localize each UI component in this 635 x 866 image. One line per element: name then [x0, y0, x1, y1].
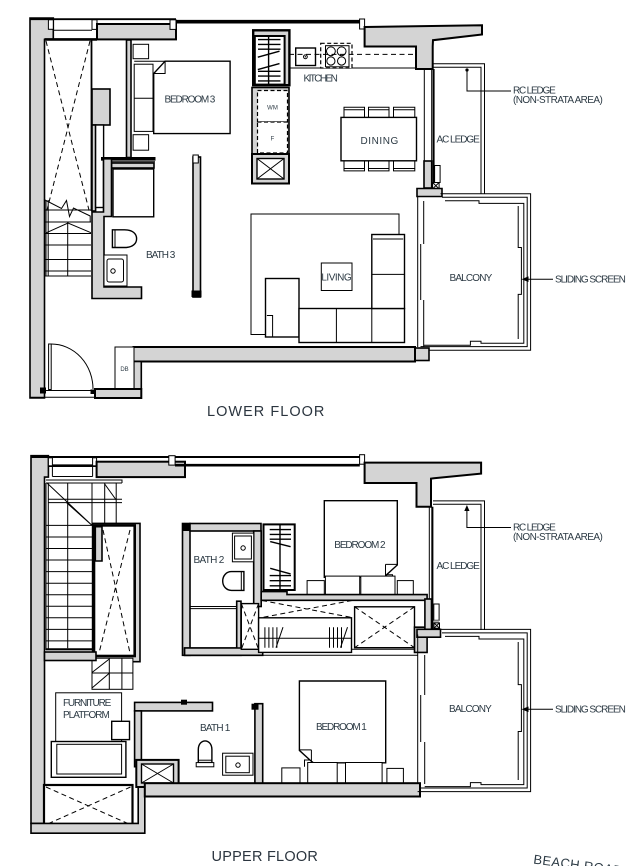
svg-text:BATH 2: BATH 2 [194, 555, 225, 566]
svg-text:BATH 3: BATH 3 [146, 250, 176, 261]
svg-text:LIVING: LIVING [321, 273, 352, 284]
svg-text:SLIDING SCREEN: SLIDING SCREEN [555, 705, 626, 716]
svg-text:UPPER FLOOR: UPPER FLOOR [212, 849, 321, 865]
svg-text:SLIDING SCREEN: SLIDING SCREEN [555, 275, 626, 286]
svg-text:AC LEDGE: AC LEDGE [437, 135, 481, 146]
svg-text:DINING: DINING [361, 136, 399, 147]
svg-text:WM: WM [267, 106, 278, 112]
svg-text:BEDROOM 1: BEDROOM 1 [316, 722, 367, 733]
svg-text:F: F [271, 137, 275, 143]
svg-text:BEDROOM 2: BEDROOM 2 [334, 540, 386, 551]
svg-text:BATH 1: BATH 1 [200, 723, 231, 734]
svg-text:KITCHEN: KITCHEN [304, 74, 339, 85]
svg-text:LOWER FLOOR: LOWER FLOOR [207, 404, 327, 420]
svg-text:AC LEDGE: AC LEDGE [437, 561, 481, 572]
svg-text:(NON-STRATA AREA): (NON-STRATA AREA) [513, 95, 603, 106]
svg-text:DB: DB [120, 367, 128, 373]
svg-text:FURNITURE: FURNITURE [63, 698, 112, 709]
svg-text:BALCONY: BALCONY [449, 704, 492, 715]
svg-text:PLATFORM: PLATFORM [63, 710, 110, 721]
svg-text:(NON-STRATA AREA): (NON-STRATA AREA) [513, 532, 603, 543]
svg-text:BEDROOM 3: BEDROOM 3 [165, 95, 216, 106]
svg-text:BALCONY: BALCONY [450, 273, 493, 284]
